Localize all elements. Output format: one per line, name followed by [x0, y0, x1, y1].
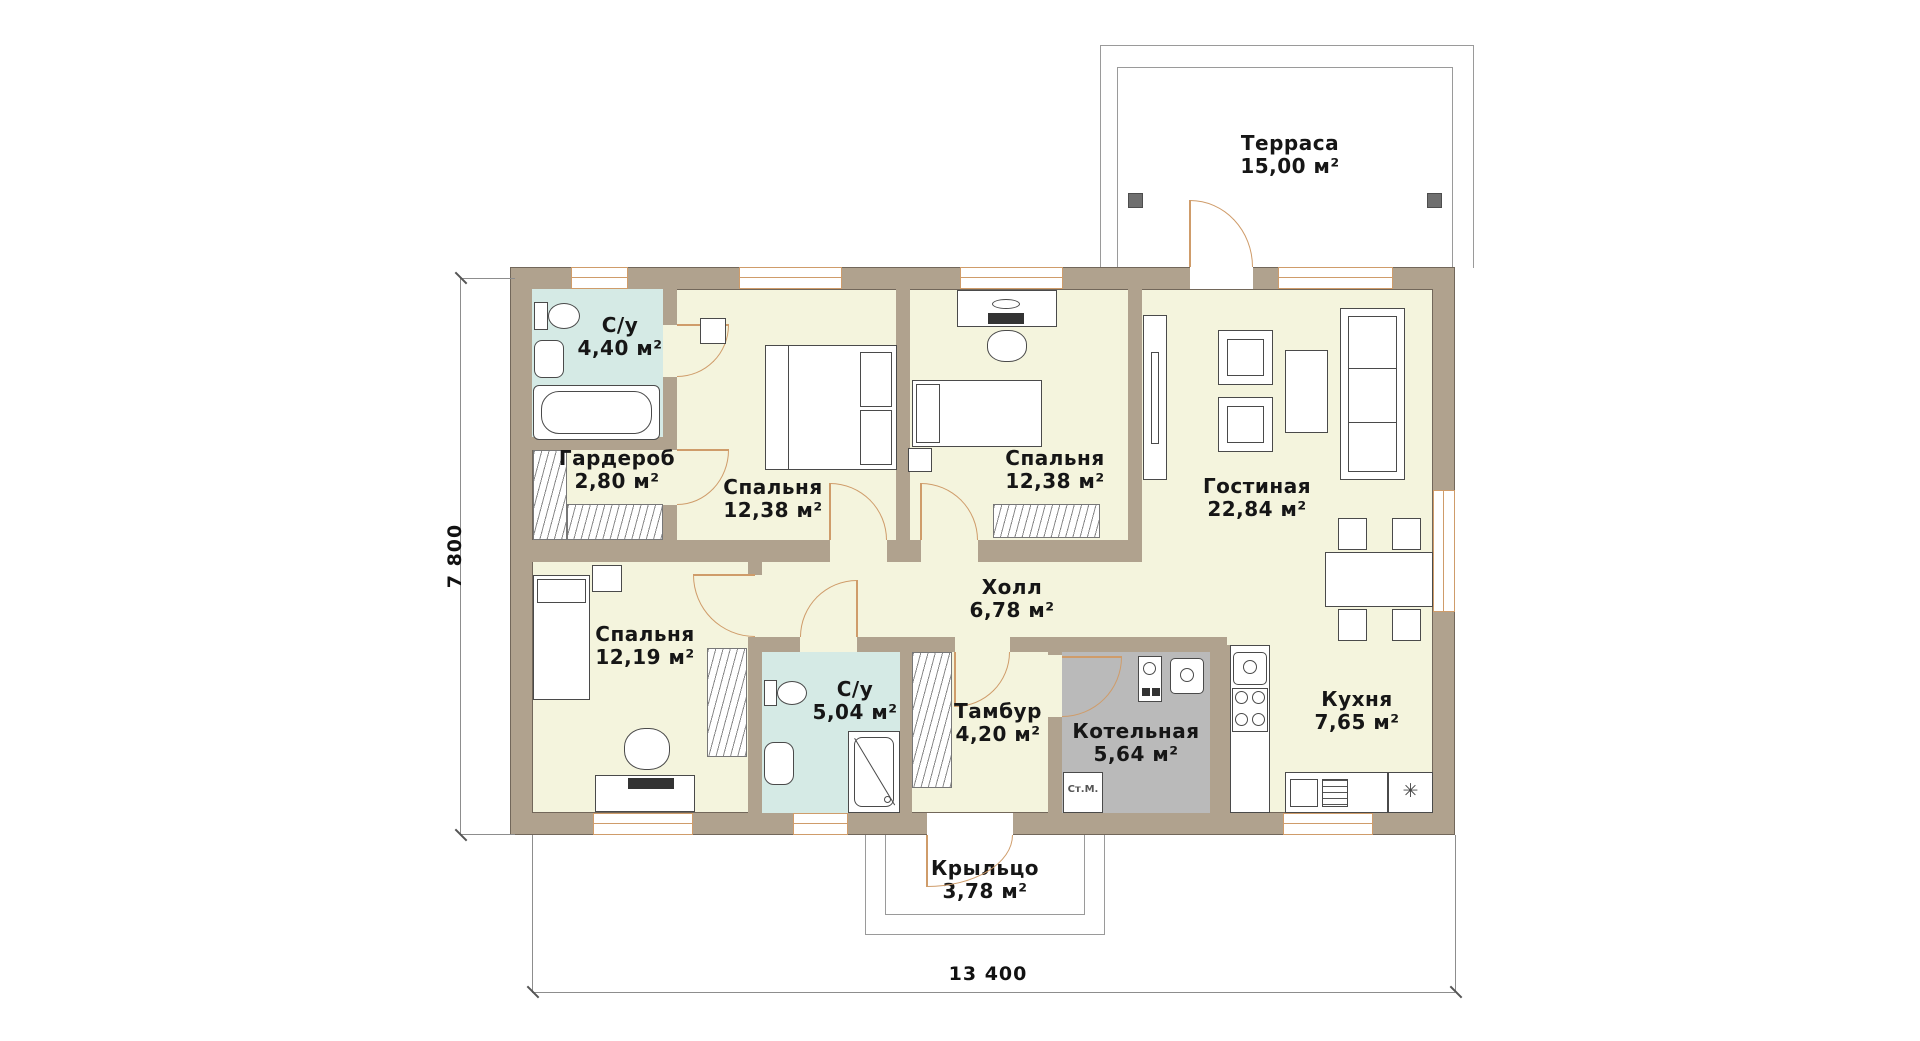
entry-door-leaf — [926, 835, 928, 887]
bedroom3-door-leaf — [693, 574, 755, 576]
room-name: Тамбур — [938, 700, 1058, 723]
window — [593, 813, 693, 835]
room-area: 6,78 м² — [942, 599, 1082, 622]
armchair-seat — [1227, 339, 1264, 376]
wardrobe-closet — [567, 504, 663, 540]
dining-chair — [1338, 609, 1367, 641]
toilet-tank — [534, 302, 548, 330]
room-label-vestibule: Тамбур 4,20 м² — [938, 700, 1058, 746]
sofa-cushion-line — [1348, 422, 1397, 423]
dimension-tick — [455, 829, 468, 842]
bath2-door-opening — [800, 637, 857, 652]
window — [739, 267, 842, 289]
window — [960, 267, 1063, 289]
dining-chair — [1338, 518, 1367, 550]
dimension-extension — [1455, 835, 1456, 992]
pillow — [537, 579, 586, 603]
wall-bath2-vestibule — [900, 652, 912, 813]
boiler-switch — [1142, 688, 1150, 696]
shower-drain — [884, 796, 891, 803]
floor-plan: Терраса 15,00 м² Крыльцо 3,78 м² — [0, 0, 1920, 1041]
bed-fold-line — [788, 346, 789, 469]
dining-table — [1325, 552, 1433, 607]
sofa-seat — [1348, 316, 1397, 472]
terrace-post — [1427, 193, 1442, 208]
window — [1283, 813, 1373, 835]
bedroom1-door-opening — [830, 540, 887, 562]
bedroom2-door-leaf — [920, 483, 922, 540]
room-name: Спальня — [703, 476, 843, 499]
room-area: 7,65 м² — [1297, 711, 1417, 734]
pillow — [916, 384, 940, 443]
room-name: Холл — [942, 576, 1082, 599]
stove-burner — [1235, 713, 1248, 726]
stove-burner — [1252, 713, 1265, 726]
vestibule-door-opening — [955, 637, 1010, 652]
terrace-post — [1128, 193, 1143, 208]
bathroom-sink — [764, 742, 794, 785]
kitchen-sink-drain — [1243, 660, 1257, 674]
room-name: С/у — [560, 314, 680, 337]
room-label-bedroom3: Спальня 12,19 м² — [575, 623, 715, 669]
boiler-dial — [1143, 662, 1156, 675]
room-area: 12,38 м² — [985, 470, 1125, 493]
stove-burner — [1252, 691, 1265, 704]
bathtub-inner — [541, 391, 652, 434]
dimension-extension — [532, 835, 533, 992]
terrace-door-opening — [1190, 267, 1253, 289]
room-label-bedroom1: Спальня 12,38 м² — [703, 476, 843, 522]
bedroom2-door-opening — [921, 540, 978, 562]
room-label-bedroom2: Спальня 12,38 м² — [985, 447, 1125, 493]
room-label-kitchen: Кухня 7,65 м² — [1297, 688, 1417, 734]
window — [793, 813, 848, 835]
boiler-door-leaf — [1062, 656, 1122, 658]
room-name: Спальня — [575, 623, 715, 646]
wall-boiler-kitchen — [1210, 645, 1230, 813]
desk-lamp — [992, 299, 1020, 309]
sofa-cushion-line — [1348, 368, 1397, 369]
room-area: 4,20 м² — [938, 723, 1058, 746]
armchair-seat — [1227, 406, 1264, 443]
room-name: Гардероб — [547, 447, 687, 470]
room-name: Котельная — [1066, 720, 1206, 743]
keyboard — [988, 313, 1024, 324]
dimension-extension — [460, 834, 515, 835]
dimension-width-label: 13 400 — [933, 963, 1043, 985]
room-area: 15,00 м² — [1190, 155, 1390, 178]
utility-sink-drain — [1180, 668, 1194, 682]
room-area: 22,84 м² — [1177, 498, 1337, 521]
oven-vents — [1322, 779, 1348, 807]
room-area: 5,04 м² — [795, 701, 915, 724]
keyboard — [628, 778, 674, 789]
pillow — [860, 352, 892, 407]
room-label-terrace: Терраса 15,00 м² — [1190, 132, 1390, 178]
room-label-wardrobe: Гардероб 2,80 м² — [547, 447, 687, 493]
toilet-tank — [764, 680, 777, 706]
room-name: Кухня — [1297, 688, 1417, 711]
room-label-bath-master: С/у 4,40 м² — [560, 314, 680, 360]
room-label-boiler: Котельная 5,64 м² — [1066, 720, 1206, 766]
boiler-switch — [1152, 688, 1160, 696]
room-name: Гостиная — [1177, 475, 1337, 498]
coffee-table — [1285, 350, 1328, 433]
tv — [1151, 352, 1159, 444]
room-area: 4,40 м² — [560, 337, 680, 360]
room-name: Терраса — [1190, 132, 1390, 155]
entry-door-opening — [927, 813, 1013, 835]
window — [1433, 490, 1455, 612]
bath2-door-leaf — [856, 580, 858, 637]
nightstand — [908, 448, 932, 472]
fridge-icon: ✳ — [1388, 780, 1433, 802]
room-label-bath2: С/у 5,04 м² — [795, 678, 915, 724]
room-area: 2,80 м² — [547, 470, 687, 493]
wall-bedroom1-bedroom2 — [896, 289, 910, 540]
nightstand — [592, 565, 622, 592]
dining-chair — [1392, 518, 1421, 550]
dimension-line-horizontal — [532, 992, 1455, 993]
window — [571, 267, 628, 289]
dimension-extension — [460, 278, 515, 279]
room-area: 12,38 м² — [703, 499, 843, 522]
wall-bedroom2-living — [1128, 289, 1142, 540]
terrace-door-leaf — [1189, 200, 1191, 267]
pillow — [860, 410, 892, 465]
bedroom2-closet — [993, 504, 1100, 538]
room-label-hall: Холл 6,78 м² — [942, 576, 1082, 622]
stove-burner — [1235, 691, 1248, 704]
room-name: С/у — [795, 678, 915, 701]
office-chair — [624, 728, 670, 770]
room-label-living: Гостиная 22,84 м² — [1177, 475, 1337, 521]
dishwasher — [1290, 779, 1318, 807]
dimension-height-label: 7 800 — [444, 501, 466, 611]
room-name: Спальня — [985, 447, 1125, 470]
dining-chair — [1392, 609, 1421, 641]
room-area: 5,64 м² — [1066, 743, 1206, 766]
room-area: 12,19 м² — [575, 646, 715, 669]
window — [1278, 267, 1393, 289]
office-chair — [987, 330, 1027, 362]
washing-machine-label: Ст.М. — [1063, 784, 1103, 795]
dresser — [700, 318, 726, 344]
